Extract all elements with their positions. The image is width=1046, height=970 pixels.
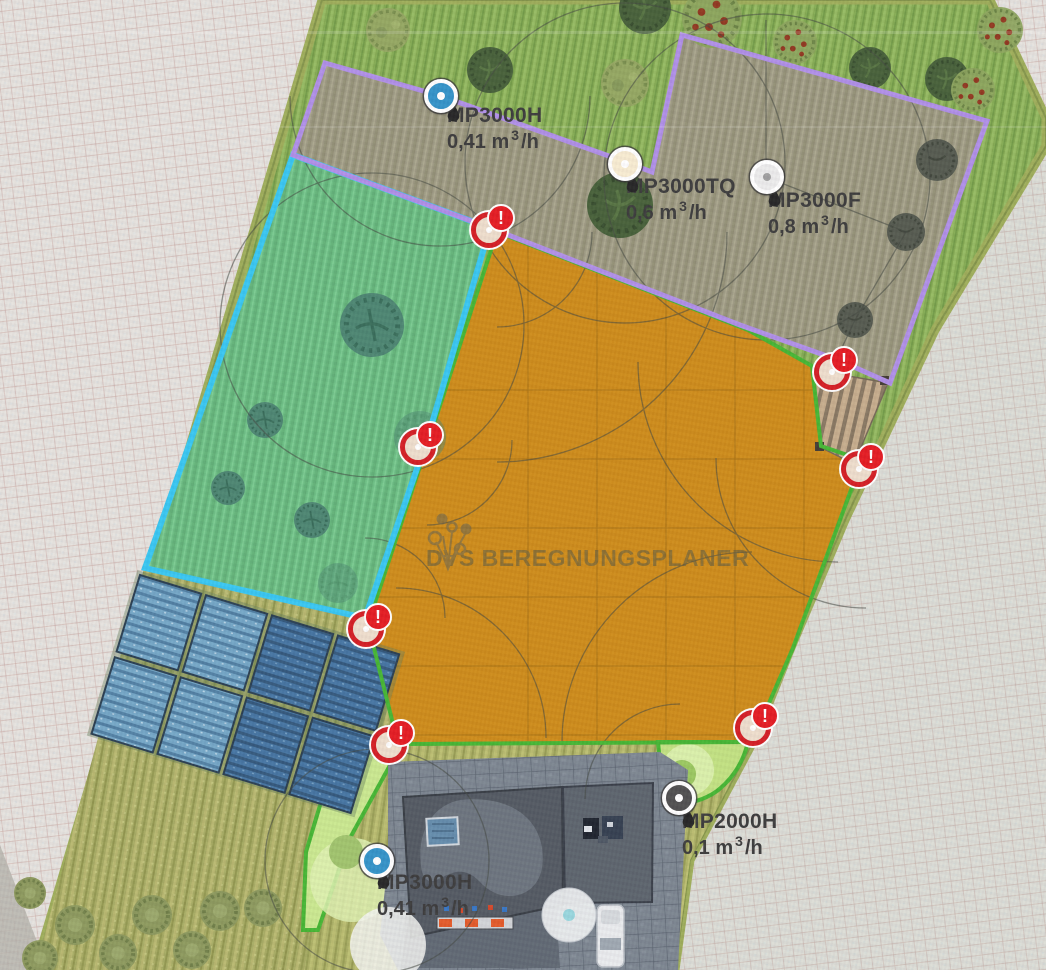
sprinkler-flow: 0,41 m3/h [447, 131, 542, 153]
warning-badge-icon: ! [830, 346, 858, 374]
warning-badge-icon: ! [387, 719, 415, 747]
sprinkler-flow: 0,8 m3/h [768, 216, 861, 238]
warning-marker[interactable]: ! [348, 611, 384, 647]
sprinkler-marker-mp2000h[interactable] [662, 781, 696, 815]
warning-marker[interactable]: ! [735, 710, 771, 746]
warning-marker[interactable]: ! [400, 429, 436, 465]
sprinkler-marker-mp3000tq[interactable] [608, 147, 642, 181]
sprinkler-flow: 0,41 m3/h [377, 898, 472, 920]
warning-marker[interactable]: ! [371, 727, 407, 763]
sprinkler-label: MP3000F0,8 m3/h [768, 189, 861, 238]
plan-canvas[interactable]: DVS BEREGNUNGSPLANER MP3000H0,41 m3/hMP3… [0, 0, 1046, 970]
warning-badge-icon: ! [487, 204, 515, 232]
warning-badge-icon: ! [364, 603, 392, 631]
warning-badge-icon: ! [416, 421, 444, 449]
sprinkler-label: MP3000H0,41 m3/h [447, 104, 542, 153]
sprinkler-model: MP3000TQ [626, 175, 736, 198]
warning-badge-icon: ! [857, 443, 885, 471]
sprinkler-model: MP2000H [682, 810, 777, 833]
sprinkler-marker-mp3000h[interactable] [424, 79, 458, 113]
marker-center-dot [621, 160, 629, 168]
sprinkler-label: MP2000H0,1 m3/h [682, 810, 777, 859]
sprinkler-flow: 0,6 m3/h [626, 202, 736, 224]
sprinkler-model: MP3000F [768, 189, 861, 212]
warning-badge-icon: ! [751, 702, 779, 730]
sprinkler-marker-mp3000f[interactable] [750, 160, 784, 194]
marker-center-dot [763, 173, 771, 181]
sprinkler-label: MP3000TQ0,6 m3/h [626, 175, 736, 224]
warning-marker[interactable]: ! [471, 212, 507, 248]
sprinkler-flow: 0,1 m3/h [682, 837, 777, 859]
marker-center-dot [373, 857, 381, 865]
warning-marker[interactable]: ! [814, 354, 850, 390]
sprinkler-model: MP3000H [377, 871, 472, 894]
sprinkler-marker-mp3000h[interactable] [360, 844, 394, 878]
marker-center-dot [675, 794, 683, 802]
sprinkler-model: MP3000H [447, 104, 542, 127]
marker-layer: MP3000H0,41 m3/hMP3000TQ0,6 m3/hMP3000F0… [0, 0, 1046, 970]
marker-center-dot [437, 92, 445, 100]
sprinkler-label: MP3000H0,41 m3/h [377, 871, 472, 920]
warning-marker[interactable]: ! [841, 451, 877, 487]
